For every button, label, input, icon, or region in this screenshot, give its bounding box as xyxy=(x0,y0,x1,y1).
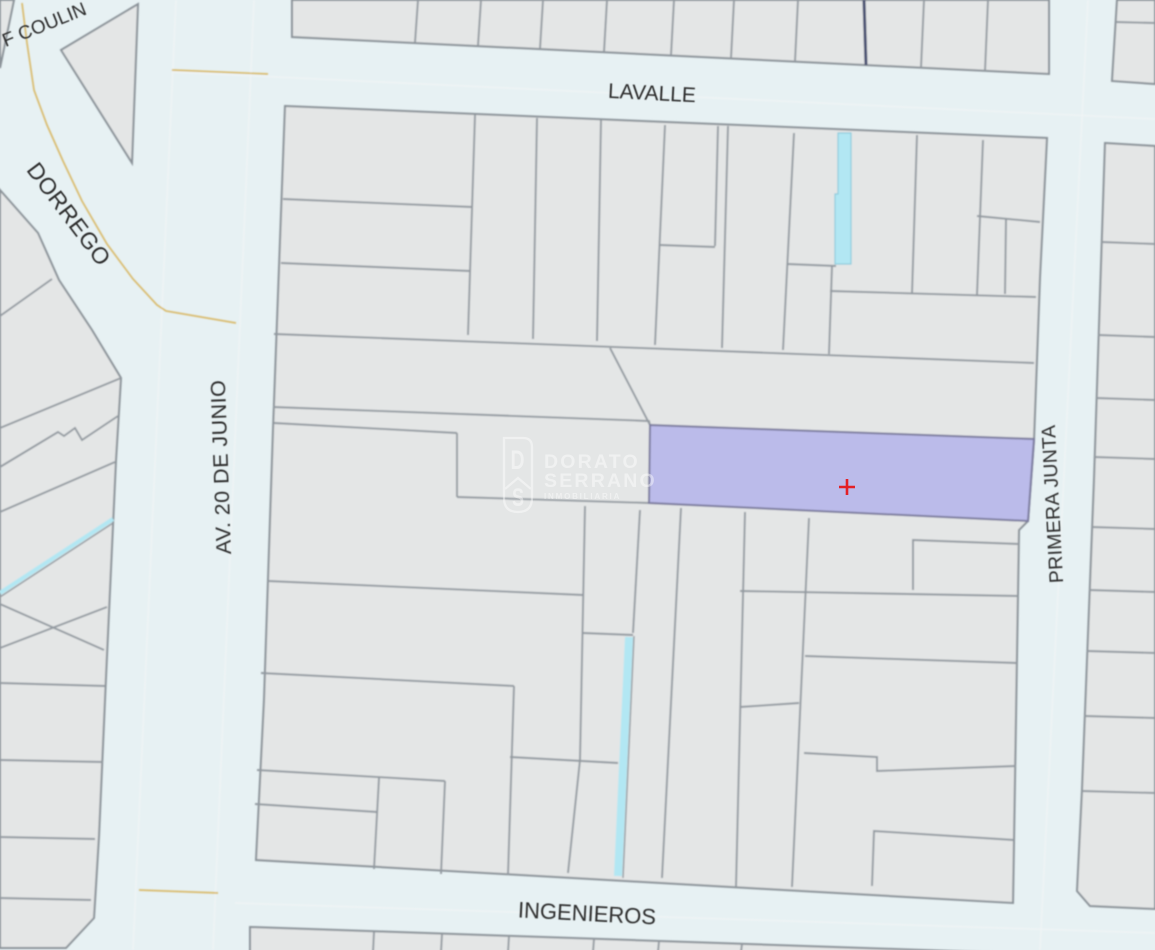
svg-text:S: S xyxy=(512,483,524,512)
svg-text:INMOBILIARIA: INMOBILIARIA xyxy=(544,492,621,501)
svg-text:D: D xyxy=(511,445,525,475)
svg-text:LAVALLE: LAVALLE xyxy=(607,80,696,108)
svg-text:SERRANO: SERRANO xyxy=(544,470,657,492)
